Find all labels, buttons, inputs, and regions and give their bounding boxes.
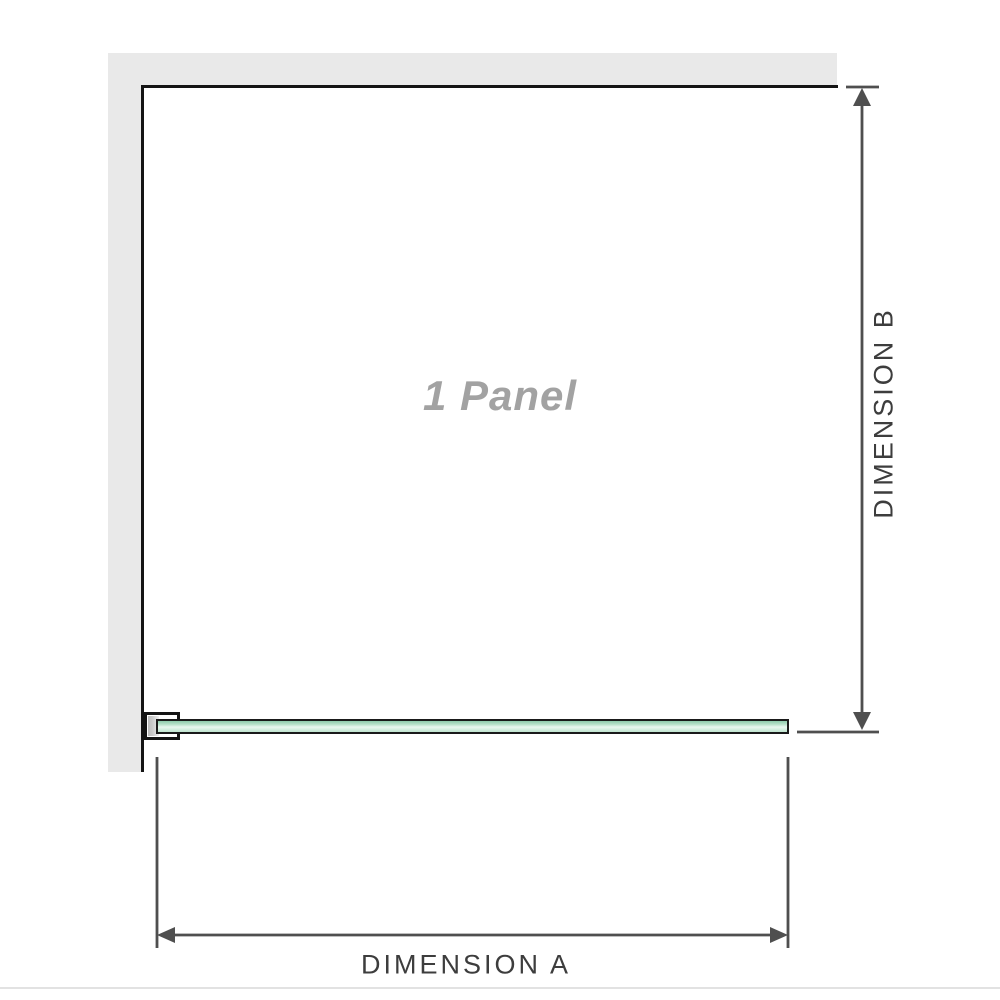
dimension-lines (0, 0, 1000, 1000)
dimension-b-arrow (797, 87, 879, 732)
dimension-a-label: DIMENSION A (361, 950, 571, 981)
dimension-a-arrow (157, 757, 788, 948)
dimension-b-label: DIMENSION B (869, 307, 900, 519)
panel-dimension-diagram: 1 Panel DIMENSION A DIMENSION B (0, 0, 1000, 1000)
